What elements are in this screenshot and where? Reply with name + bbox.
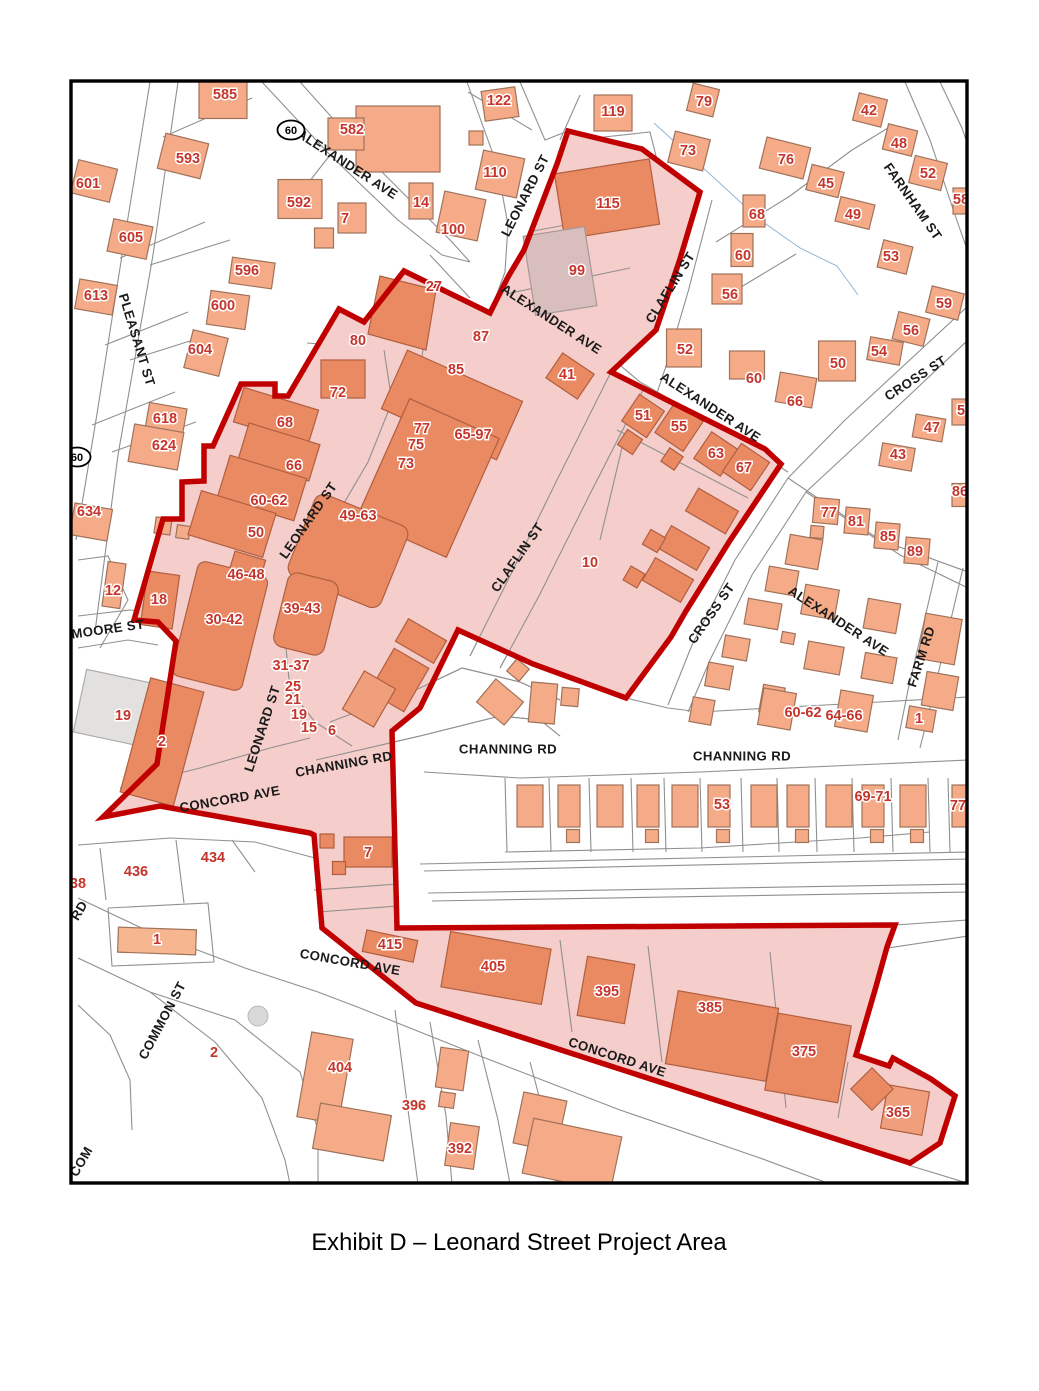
svg-text:77: 77 [950,798,966,814]
svg-text:48: 48 [891,136,907,152]
svg-text:436: 436 [124,864,148,880]
svg-text:76: 76 [778,152,794,168]
svg-text:582: 582 [340,122,364,138]
svg-text:385: 385 [698,1000,722,1016]
svg-text:59: 59 [936,296,952,312]
svg-text:49-63: 49-63 [339,508,376,524]
svg-text:52: 52 [920,166,936,182]
svg-text:45: 45 [818,176,834,192]
svg-text:65-97: 65-97 [454,427,491,443]
svg-text:64-66: 64-66 [825,708,862,724]
svg-text:63: 63 [708,446,724,462]
svg-text:CHANNING RD: CHANNING RD [693,748,791,763]
svg-text:21: 21 [285,692,301,708]
svg-text:7: 7 [364,845,372,861]
svg-text:100: 100 [441,222,465,238]
svg-text:66: 66 [286,458,302,474]
svg-text:79: 79 [696,94,712,110]
svg-text:51: 51 [635,408,651,424]
svg-text:60: 60 [746,371,762,387]
svg-text:60-62: 60-62 [250,493,287,509]
svg-text:19: 19 [115,708,131,724]
svg-text:30-42: 30-42 [205,612,242,628]
svg-text:1: 1 [153,932,161,948]
svg-text:115: 115 [596,196,619,212]
svg-text:75: 75 [408,437,424,453]
svg-text:10: 10 [582,555,598,571]
svg-text:53: 53 [714,797,730,813]
svg-text:600: 600 [211,298,235,314]
svg-text:60: 60 [285,125,297,137]
svg-text:31-37: 31-37 [272,658,309,674]
svg-text:46-48: 46-48 [227,567,264,583]
svg-text:85: 85 [448,362,464,378]
svg-text:67: 67 [736,460,752,476]
svg-text:87: 87 [473,329,489,345]
svg-text:77: 77 [414,421,430,437]
svg-text:396: 396 [402,1098,426,1114]
svg-text:395: 395 [595,984,619,1000]
svg-text:375: 375 [792,1044,816,1060]
svg-text:41: 41 [559,367,575,383]
svg-text:43: 43 [890,447,906,463]
svg-text:42: 42 [861,103,877,119]
svg-text:14: 14 [413,195,429,211]
svg-text:7: 7 [341,211,349,227]
svg-text:68: 68 [277,415,293,431]
svg-text:604: 604 [188,342,212,358]
svg-text:613: 613 [84,288,108,304]
svg-text:55: 55 [671,419,687,435]
svg-text:81: 81 [848,514,864,530]
svg-text:60: 60 [71,452,83,464]
svg-text:72: 72 [330,385,346,401]
svg-text:2: 2 [210,1045,218,1061]
svg-text:593: 593 [176,151,200,167]
svg-text:434: 434 [201,850,225,866]
svg-text:585: 585 [213,87,237,103]
svg-text:596: 596 [235,263,259,279]
svg-text:99: 99 [569,263,585,279]
svg-text:56: 56 [903,323,919,339]
svg-text:404: 404 [328,1060,352,1076]
svg-text:49: 49 [845,207,861,223]
svg-text:12: 12 [105,583,121,599]
svg-text:392: 392 [448,1141,472,1157]
svg-text:50: 50 [830,356,846,372]
svg-text:CHANNING RD: CHANNING RD [459,741,557,756]
svg-text:2: 2 [158,734,166,750]
svg-text:365: 365 [886,1105,910,1121]
svg-text:69-71: 69-71 [854,789,891,805]
svg-text:634: 634 [77,504,101,520]
svg-text:68: 68 [749,207,765,223]
svg-text:605: 605 [119,230,143,246]
svg-text:119: 119 [601,104,624,120]
svg-text:85: 85 [880,529,896,545]
svg-text:60: 60 [735,248,751,264]
svg-text:415: 415 [378,937,402,953]
svg-text:53: 53 [883,249,899,265]
svg-text:624: 624 [152,438,176,454]
svg-text:50: 50 [248,525,264,541]
svg-text:77: 77 [821,505,837,521]
svg-text:618: 618 [153,411,177,427]
svg-text:89: 89 [907,544,923,560]
svg-text:54: 54 [871,344,887,360]
svg-text:15: 15 [301,720,317,736]
svg-text:Exhibit D – Leonard Street Pro: Exhibit D – Leonard Street Project Area [311,1229,727,1256]
svg-text:110: 110 [483,165,506,181]
svg-text:66: 66 [787,394,803,410]
svg-text:601: 601 [76,176,100,192]
svg-text:27: 27 [426,279,442,295]
svg-text:80: 80 [350,333,366,349]
svg-text:5: 5 [957,403,965,419]
svg-text:56: 56 [722,287,738,303]
svg-text:52: 52 [677,342,693,358]
svg-text:122: 122 [487,93,511,109]
svg-text:60-62: 60-62 [784,705,821,721]
svg-text:592: 592 [287,195,311,211]
svg-text:73: 73 [398,456,414,472]
svg-text:39-43: 39-43 [283,601,320,617]
svg-text:73: 73 [680,143,696,159]
svg-text:405: 405 [481,959,505,975]
svg-text:47: 47 [924,420,940,436]
svg-text:6: 6 [328,723,336,739]
svg-text:18: 18 [151,592,167,608]
svg-text:1: 1 [915,711,923,727]
